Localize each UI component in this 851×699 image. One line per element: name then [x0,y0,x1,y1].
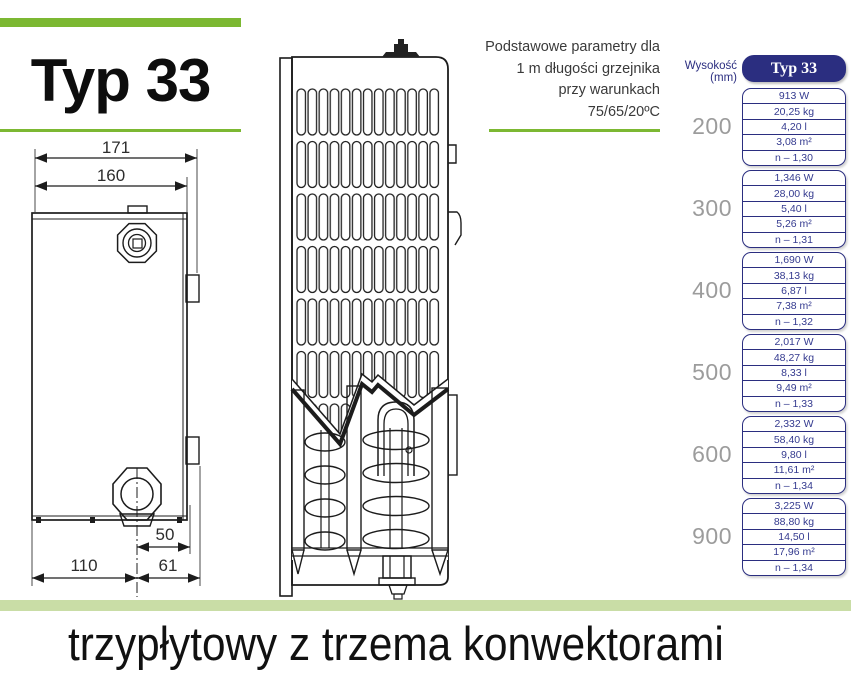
value-exponent: n – 1,30 [743,150,845,165]
value-weight: 38,13 kg [743,267,845,282]
value-box: 913 W 20,25 kg 4,20 l 3,08 m² n – 1,30 [742,88,846,166]
table-row-900: 900 3,225 W 88,80 kg 14,50 l 17,96 m² n … [655,498,851,574]
value-capacity: 6,87 l [743,283,845,298]
dim-total-width-label: 171 [102,140,130,157]
datasheet-page: Typ 33 Podstawowe parametry dla 1 m dług… [0,0,851,699]
table-row-300: 300 1,346 W 28,00 kg 5,40 l 5,26 m² n – … [655,170,851,246]
value-power: 1,690 W [743,253,845,267]
value-capacity: 9,80 l [743,447,845,462]
value-power: 3,225 W [743,499,845,513]
note-underline [489,129,660,132]
dimension-lines: 171 160 50 110 61 [32,140,200,586]
value-box: 1,690 W 38,13 kg 6,87 l 7,38 m² n – 1,32 [742,252,846,330]
value-area: 9,49 m² [743,380,845,395]
top-accent-bar [0,18,241,27]
value-capacity: 8,33 l [743,365,845,380]
value-exponent: n – 1,33 [743,396,845,411]
value-weight: 48,27 kg [743,349,845,364]
value-area: 5,26 m² [743,216,845,231]
dim-right-span-label: 61 [159,556,178,575]
value-power: 913 W [743,89,845,103]
height-label: 900 [655,498,732,574]
column-header-typ33: Typ 33 [742,55,846,82]
value-power: 2,017 W [743,335,845,349]
value-box: 2,017 W 48,27 kg 8,33 l 9,49 m² n – 1,33 [742,334,846,412]
height-label: 500 [655,334,732,410]
note-line-3: przy warunkach [462,80,660,102]
value-weight: 20,25 kg [743,103,845,118]
table-row-200: 200 913 W 20,25 kg 4,20 l 3,08 m² n – 1,… [655,88,851,164]
value-capacity: 14,50 l [743,529,845,544]
dim-valve-offset-label: 50 [156,525,175,544]
bottom-accent-bar [0,600,851,611]
spec-table: Wysokość (mm) Typ 33 200 913 W 20,25 kg … [655,50,851,590]
table-row-400: 400 1,690 W 38,13 kg 6,87 l 7,38 m² n – … [655,252,851,328]
note-line-1: Podstawowe parametry dla [462,37,660,59]
dim-left-span-label: 110 [70,556,97,575]
value-exponent: n – 1,34 [743,560,845,575]
value-weight: 28,00 kg [743,185,845,200]
value-exponent: n – 1,32 [743,314,845,329]
value-exponent: n – 1,34 [743,478,845,493]
footer-caption: trzypłytowy z trzema konwektorami [68,616,724,671]
table-row-500: 500 2,017 W 48,27 kg 8,33 l 9,49 m² n – … [655,334,851,410]
value-power: 1,346 W [743,171,845,185]
value-weight: 88,80 kg [743,513,845,528]
note-line-2: 1 m długości grzejnika [462,59,660,81]
parameters-note: Podstawowe parametry dla 1 m długości gr… [462,37,660,123]
value-exponent: n – 1,31 [743,232,845,247]
value-box: 1,346 W 28,00 kg 5,40 l 5,26 m² n – 1,31 [742,170,846,248]
value-capacity: 5,40 l [743,201,845,216]
page-title: Typ 33 [0,34,241,126]
value-weight: 58,40 kg [743,431,845,446]
height-label: 300 [655,170,732,246]
value-box: 3,225 W 88,80 kg 14,50 l 17,96 m² n – 1,… [742,498,846,576]
value-capacity: 4,20 l [743,119,845,134]
value-power: 2,332 W [743,417,845,431]
height-label: 400 [655,252,732,328]
note-line-4: 75/65/20ºC [462,102,660,124]
height-label: 200 [655,88,732,164]
drain-valve [379,556,415,599]
front-view-drawing [270,30,470,605]
title-underline [0,129,241,132]
height-axis-label: Wysokość (mm) [655,60,737,84]
top-valve [118,224,157,263]
value-box: 2,332 W 58,40 kg 9,80 l 11,61 m² n – 1,3… [742,416,846,494]
radiator-side-body [32,206,199,523]
table-row-600: 600 2,332 W 58,40 kg 9,80 l 11,61 m² n –… [655,416,851,492]
dim-body-width-label: 160 [97,166,125,185]
value-area: 7,38 m² [743,298,845,313]
value-area: 11,61 m² [743,462,845,477]
value-area: 3,08 m² [743,134,845,149]
side-view-drawing: 171 160 50 110 61 [20,140,270,600]
height-label: 600 [655,416,732,492]
top-cap [382,52,420,57]
value-area: 17,96 m² [743,544,845,559]
